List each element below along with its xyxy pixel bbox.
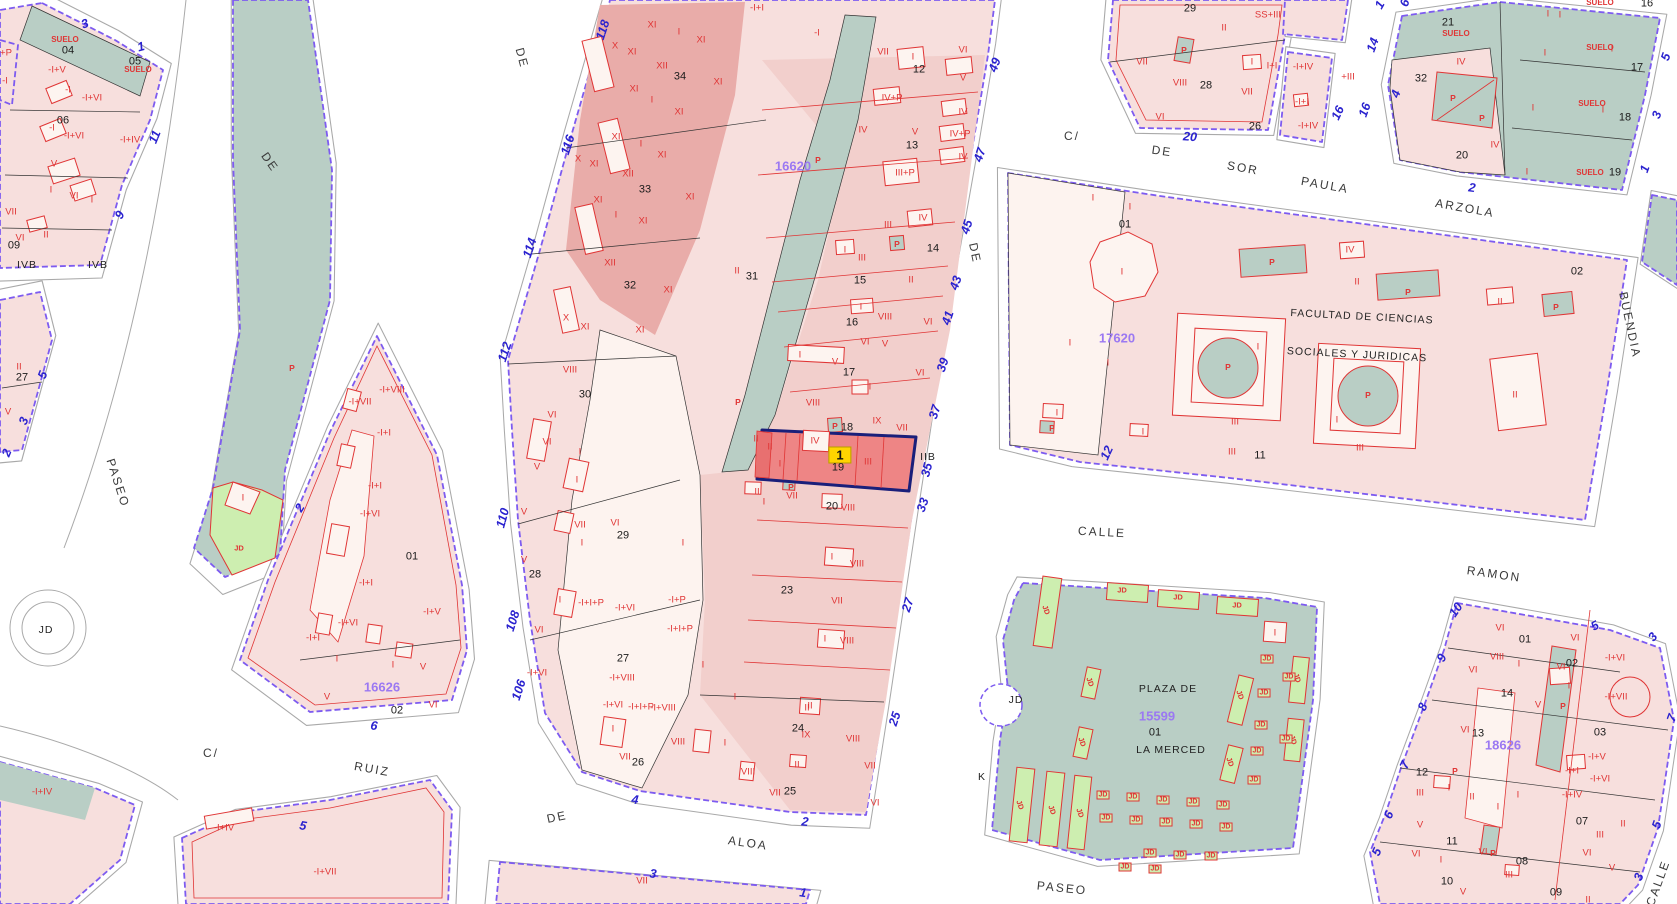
label-rl: VII bbox=[1136, 57, 1148, 67]
label-sn: 3 bbox=[1632, 872, 1646, 883]
label-rl: IX bbox=[873, 416, 882, 426]
label-sn: 6 bbox=[1398, 0, 1412, 8]
label-rl: -I+VI bbox=[603, 700, 623, 710]
label-rl: -I+IV bbox=[214, 823, 234, 833]
label-st: ALOA bbox=[727, 834, 768, 851]
label-rl: V bbox=[1417, 820, 1423, 830]
label-jdt: JD bbox=[1085, 676, 1095, 688]
label-rl: V bbox=[534, 462, 540, 472]
label-jd: JD bbox=[1217, 801, 1230, 810]
label-sn: 1 bbox=[1638, 164, 1652, 175]
label-rl: II bbox=[1497, 297, 1502, 307]
label-rl: I bbox=[831, 552, 834, 562]
label-bk: JD bbox=[1009, 695, 1024, 706]
label-pn: 02 bbox=[1571, 267, 1583, 278]
label-rl: I bbox=[869, 382, 872, 392]
label-rl: -I+VI bbox=[615, 603, 635, 613]
label-sn: 35 bbox=[919, 462, 935, 479]
label-rl: II bbox=[1354, 277, 1359, 287]
label-rl: V bbox=[521, 507, 527, 517]
label-rl: -I+VI bbox=[527, 668, 547, 678]
label-rl: I bbox=[678, 27, 681, 37]
label-pn: 26 bbox=[1249, 122, 1261, 133]
label-pn: 18 bbox=[1619, 113, 1631, 124]
label-rl: -I+I bbox=[306, 633, 320, 643]
label-rl: -I+VII bbox=[349, 397, 372, 407]
label-su: SUELO bbox=[1586, 0, 1614, 7]
label-sn: 6 bbox=[370, 719, 379, 732]
label-rl: I bbox=[1517, 790, 1520, 800]
label-rl: VII bbox=[896, 423, 908, 433]
label-rl: -I bbox=[65, 85, 71, 95]
label-rl: II bbox=[753, 434, 758, 444]
label-pn: 07 bbox=[1576, 817, 1588, 828]
label-rl: VI bbox=[924, 317, 933, 327]
label-rl: VII bbox=[831, 596, 843, 606]
label-rl: II bbox=[754, 487, 759, 497]
label-rl: I bbox=[1602, 105, 1605, 115]
label-rl: VII bbox=[786, 491, 798, 501]
label-rl: I bbox=[1532, 103, 1535, 113]
label-sn: 1 bbox=[1373, 0, 1387, 11]
label-rl: VIII bbox=[840, 636, 854, 646]
label-pn: 08 bbox=[1516, 857, 1528, 868]
label-p: P bbox=[1225, 363, 1231, 372]
label-rl: II bbox=[1585, 895, 1590, 904]
label-rl: III bbox=[858, 253, 866, 263]
label-rl: I bbox=[824, 634, 827, 644]
label-rl: I bbox=[844, 245, 847, 255]
label-jdt: JD bbox=[1015, 799, 1025, 811]
label-sn: 2 bbox=[1468, 181, 1477, 194]
label-sn: 5 bbox=[36, 369, 50, 380]
label-rl: VII bbox=[574, 520, 586, 530]
label-p: P bbox=[289, 364, 295, 373]
label-rl: VI bbox=[871, 798, 880, 808]
label-rl: VI bbox=[543, 437, 552, 447]
label-jd: JD bbox=[1130, 816, 1143, 825]
label-rl: II bbox=[43, 230, 48, 240]
label-rl: III bbox=[1231, 417, 1239, 427]
label-rl: -I+VI bbox=[1590, 774, 1610, 784]
label-pn: 33 bbox=[639, 185, 651, 196]
label-bk: SOCIALES Y JURIDICAS bbox=[1287, 346, 1428, 364]
label-rl: -I+V bbox=[423, 607, 441, 617]
label-jd: JD bbox=[1127, 793, 1140, 802]
label-rl: X bbox=[575, 154, 581, 164]
label-bk: LA MERCED bbox=[1136, 745, 1206, 756]
label-sn: 47 bbox=[972, 146, 988, 163]
label-jd: JD bbox=[1119, 863, 1132, 872]
label-p: P bbox=[1405, 288, 1411, 297]
label-rl: -I bbox=[49, 123, 55, 133]
label-bk: K bbox=[978, 772, 986, 783]
label-rl: V bbox=[521, 555, 527, 565]
label-rl: -I+VIII bbox=[650, 703, 676, 713]
label-sn: 3 bbox=[1646, 630, 1660, 643]
label-rl: VIII bbox=[671, 737, 685, 747]
label-rl: I bbox=[1251, 57, 1254, 67]
label-rl: I bbox=[581, 538, 584, 548]
label-jd: JD bbox=[1251, 747, 1264, 756]
label-rl: I bbox=[50, 185, 53, 195]
label-sn: 8 bbox=[1416, 701, 1430, 713]
label-rl: I bbox=[1547, 9, 1550, 19]
label-rl: VI bbox=[1496, 623, 1505, 633]
label-rl: I bbox=[1568, 681, 1571, 691]
label-p: P bbox=[1450, 94, 1456, 103]
label-rl: VIII bbox=[850, 559, 864, 569]
label-rl: V bbox=[420, 662, 426, 672]
label-rl: V bbox=[1460, 887, 1466, 897]
label-rl: III+P bbox=[895, 168, 915, 178]
label-sn: 27 bbox=[900, 597, 916, 614]
label-rl: -I+IV bbox=[32, 787, 52, 797]
label-jd: JD bbox=[1220, 823, 1233, 832]
label-pn: 29 bbox=[1184, 4, 1196, 15]
label-rl: VI bbox=[861, 337, 870, 347]
label-pn: 16 bbox=[1641, 0, 1653, 10]
label-rl: I bbox=[612, 724, 615, 734]
label-pn: 17 bbox=[1631, 63, 1643, 74]
label-pn: 01 bbox=[1119, 220, 1131, 231]
label-rl: I bbox=[1142, 427, 1145, 437]
label-sn: 5 bbox=[1589, 619, 1601, 633]
label-sn: 5 bbox=[298, 819, 307, 833]
label-rl: -I+VIII bbox=[609, 673, 635, 683]
label-rl: XII bbox=[622, 169, 634, 179]
label-rl: I bbox=[1440, 855, 1443, 865]
label-st: DE bbox=[546, 809, 569, 825]
label-rl: XI bbox=[658, 150, 667, 160]
label-pn: 32 bbox=[624, 281, 636, 292]
label-jd: JD bbox=[1205, 852, 1218, 861]
label-rl: VIII bbox=[741, 767, 755, 777]
label-rl: III bbox=[884, 220, 892, 230]
label-sn: 110 bbox=[494, 507, 511, 529]
label-rl: I bbox=[1069, 338, 1072, 348]
label-sn: 118 bbox=[594, 19, 612, 42]
label-pn: 01 bbox=[406, 552, 418, 563]
label-rl: -I+V bbox=[48, 65, 66, 75]
label-bn: 15599 bbox=[1139, 710, 1175, 723]
label-rl: I bbox=[734, 692, 737, 702]
label-rl: I bbox=[1518, 659, 1521, 669]
label-p: P bbox=[1479, 114, 1485, 123]
label-pn: 10 bbox=[1441, 877, 1453, 888]
label-rl: -I+VII bbox=[1605, 692, 1628, 702]
label-jdt: JD bbox=[1232, 601, 1242, 609]
label-jdt: JD bbox=[234, 544, 244, 552]
label-sn: 3 bbox=[1650, 110, 1664, 121]
label-rl: -I+V bbox=[1588, 752, 1606, 762]
label-pn: 30 bbox=[579, 390, 591, 401]
label-pn: 01 bbox=[1519, 635, 1531, 646]
label-rl: -I+IV bbox=[120, 135, 140, 145]
label-st: C/ bbox=[1064, 130, 1080, 142]
label-sn: 43 bbox=[948, 274, 964, 291]
label-rl: IV bbox=[1346, 245, 1355, 255]
label-sn: 16 bbox=[1329, 104, 1346, 122]
label-rl: II bbox=[1221, 23, 1226, 33]
label-jd: JD bbox=[1100, 814, 1113, 823]
label-su: SUELO bbox=[1442, 30, 1470, 38]
label-pn: 21 bbox=[1442, 18, 1454, 29]
label-rl: I bbox=[1544, 48, 1547, 58]
label-jd: JD bbox=[1160, 818, 1173, 827]
label-rl: VI bbox=[535, 625, 544, 635]
label-pn: 09 bbox=[1550, 888, 1562, 899]
label-rl: IV bbox=[1491, 140, 1500, 150]
label-pn: 12 bbox=[913, 65, 925, 76]
label-sn: 11 bbox=[147, 129, 163, 146]
label-pn: 34 bbox=[674, 72, 686, 83]
label-jdt: JD bbox=[1235, 689, 1245, 701]
label-sn: 108 bbox=[504, 609, 522, 633]
cadastral-map: DEDEPASEOC/RUIZDEALOADEC/DESORPAULAARZOL… bbox=[0, 0, 1677, 904]
label-jd: JD bbox=[1255, 721, 1268, 730]
label-p: P bbox=[735, 398, 741, 407]
label-rl: IV bbox=[919, 213, 928, 223]
label-sn: 2 bbox=[801, 815, 809, 828]
label-rl: V bbox=[324, 692, 330, 702]
label-pn: 27 bbox=[617, 654, 629, 665]
label-rl: XI bbox=[581, 322, 590, 332]
label-rl: III bbox=[1356, 443, 1364, 453]
label-rl: I bbox=[1274, 628, 1277, 638]
label-pn: 01 bbox=[1149, 728, 1161, 739]
label-rl: I bbox=[576, 475, 579, 485]
label-sn: 10 bbox=[1447, 601, 1465, 620]
label-rl: -I+VI bbox=[1605, 653, 1625, 663]
label-rl: I bbox=[912, 52, 915, 62]
label-jd: JD bbox=[1190, 820, 1203, 829]
label-rl: I bbox=[392, 660, 395, 670]
label-bk: JD bbox=[39, 625, 54, 636]
label-rl: -I+P bbox=[668, 595, 686, 605]
label-st: BUENDIA bbox=[1617, 291, 1643, 359]
label-rl: VI bbox=[1571, 633, 1580, 643]
label-rl: -I+I bbox=[377, 428, 391, 438]
label-pn: 11 bbox=[1254, 451, 1265, 462]
label-rl: VI bbox=[1557, 662, 1566, 672]
label-rl: III bbox=[1596, 830, 1604, 840]
label-sn: 7 bbox=[1665, 713, 1677, 724]
label-rl: I bbox=[1107, 358, 1110, 368]
label-sn: 25 bbox=[887, 710, 903, 727]
label-jdt: JD bbox=[1173, 593, 1183, 601]
label-sn: 2 bbox=[293, 502, 307, 515]
label-p: P bbox=[1049, 424, 1055, 433]
label-pn: 13 bbox=[906, 141, 918, 152]
label-sn: 49 bbox=[987, 56, 1004, 73]
label-rl: III bbox=[1505, 870, 1513, 880]
label-rl: I bbox=[860, 302, 863, 312]
label-sn: 114 bbox=[521, 237, 539, 260]
label-rl: -I bbox=[2, 76, 8, 86]
label-rl: IV bbox=[1457, 57, 1466, 67]
label-su: SUELO bbox=[1576, 169, 1604, 177]
label-pn: 20 bbox=[1456, 151, 1468, 162]
label-rl: -I+VIII bbox=[379, 385, 405, 395]
label-rl: VIII bbox=[841, 503, 855, 513]
label-rl: VIII bbox=[563, 365, 577, 375]
label-rl: IV bbox=[811, 436, 820, 446]
label-rl: II bbox=[1469, 792, 1474, 802]
label-rl: I bbox=[1056, 408, 1059, 418]
label-rl: IX bbox=[802, 730, 811, 740]
label-rl: I bbox=[615, 210, 618, 220]
label-rl: XI bbox=[686, 192, 695, 202]
label-rl: -I+I bbox=[1565, 766, 1579, 776]
label-st: ARZOLA bbox=[1434, 197, 1495, 219]
label-pn: 13 bbox=[1472, 729, 1484, 740]
label-st: PASEO bbox=[104, 457, 131, 509]
label-rl: V bbox=[5, 407, 11, 417]
label-rl: I bbox=[559, 595, 562, 605]
label-pn: 17 bbox=[843, 368, 855, 379]
label-st: SOR bbox=[1226, 159, 1260, 176]
label-rl: VIII bbox=[1173, 78, 1187, 88]
label-p: P bbox=[894, 240, 900, 249]
label-bk: PLAZA DE bbox=[1139, 684, 1197, 695]
label-rl: III bbox=[1228, 447, 1236, 457]
label-pn: 02 bbox=[1566, 659, 1578, 670]
label-bk: IVB bbox=[17, 260, 37, 271]
label-rl: I bbox=[579, 447, 582, 457]
label-rl: III bbox=[1416, 788, 1424, 798]
label-pn: 16 bbox=[846, 318, 858, 329]
label-rl: VI bbox=[429, 700, 438, 710]
label-jd: JD bbox=[1144, 849, 1157, 858]
label-rl: -I+I bbox=[1295, 97, 1309, 107]
label-p: P bbox=[1490, 849, 1496, 858]
label-rl: XI bbox=[639, 216, 648, 226]
label-rl: I bbox=[682, 538, 685, 548]
label-jdt: JD bbox=[1225, 756, 1235, 768]
label-rl: I bbox=[1526, 167, 1529, 177]
label-sn: 39 bbox=[935, 356, 951, 373]
label-pn: 04 bbox=[62, 46, 74, 57]
label-sn: 4 bbox=[631, 793, 639, 806]
label-st: CALLE bbox=[1644, 858, 1672, 904]
label-rl: IV+P bbox=[950, 129, 971, 139]
label-rl: VI bbox=[1479, 847, 1488, 857]
label-sn: 5 bbox=[1370, 846, 1384, 858]
label-rl: XI bbox=[636, 325, 645, 335]
label-jd: JD bbox=[1261, 655, 1274, 664]
label-pn: 29 bbox=[617, 531, 629, 542]
label-su: SUELO bbox=[1586, 44, 1614, 52]
label-rl: XI bbox=[628, 47, 637, 57]
label-rl: III bbox=[864, 457, 872, 467]
label-rl: XI bbox=[594, 195, 603, 205]
label-st: C/ bbox=[203, 747, 219, 759]
label-rl: -I+IV bbox=[1562, 790, 1582, 800]
label-st: DE bbox=[967, 242, 983, 265]
label-sn: 3 bbox=[17, 415, 31, 426]
label-jd: JD bbox=[1283, 673, 1296, 682]
label-rl: I bbox=[651, 95, 654, 105]
label-pn: 15 bbox=[854, 276, 866, 287]
label-rl: I bbox=[336, 654, 339, 664]
label-bn: 18626 bbox=[1485, 739, 1521, 752]
label-st: RAMON bbox=[1466, 564, 1522, 583]
label-rl: V bbox=[960, 73, 966, 83]
label-rl: XI bbox=[648, 20, 657, 30]
label-rl: -I+I bbox=[750, 3, 764, 13]
label-bn: 16620 bbox=[775, 160, 811, 173]
label-rl: -I bbox=[814, 28, 820, 38]
label-rl: VII bbox=[1241, 87, 1253, 97]
label-rl: I bbox=[779, 459, 782, 469]
label-pn: 06 bbox=[57, 116, 69, 127]
label-jdt: JD bbox=[1077, 736, 1087, 748]
label-rl: -I+IV bbox=[1298, 121, 1318, 131]
label-jd: JD bbox=[1157, 796, 1170, 805]
label-rl: I bbox=[242, 493, 245, 503]
label-rl: I bbox=[1336, 415, 1339, 425]
label-pn: 28 bbox=[1200, 81, 1212, 92]
label-rl: II bbox=[16, 362, 21, 372]
label-pn: 19 bbox=[832, 463, 844, 474]
label-st: DE bbox=[514, 46, 531, 69]
label-rl: VII bbox=[636, 876, 648, 886]
label-pn: 03 bbox=[1594, 728, 1606, 739]
label-rl: I bbox=[702, 660, 705, 670]
label-pn: 20 bbox=[826, 502, 838, 513]
label-st: PAULA bbox=[1300, 175, 1350, 195]
label-sn: 5 bbox=[1659, 52, 1673, 63]
label-p: P bbox=[1269, 258, 1275, 267]
label-pn: 11 bbox=[1446, 837, 1457, 848]
label-p: P bbox=[815, 156, 821, 165]
label-jd: JD bbox=[1097, 791, 1110, 800]
label-rl: II bbox=[1620, 819, 1625, 829]
label-rl: I bbox=[1121, 267, 1124, 277]
label-rl: IV bbox=[959, 107, 968, 117]
label-p: P bbox=[1181, 46, 1187, 55]
label-sn: 106 bbox=[510, 678, 528, 702]
label-sn: 3 bbox=[80, 17, 91, 31]
label-rl: II bbox=[794, 760, 799, 770]
label-rl: XI bbox=[612, 132, 621, 142]
label-jd: JD bbox=[1174, 851, 1187, 860]
label-pn: 31 bbox=[746, 272, 758, 283]
label-rl: I+I bbox=[1267, 61, 1278, 71]
label-sn: 7 bbox=[1398, 759, 1412, 771]
label-rl: II bbox=[767, 442, 772, 452]
label-st: RUIZ bbox=[353, 760, 391, 778]
label-rl: VIII bbox=[1490, 652, 1504, 662]
label-sn: 12 bbox=[1098, 444, 1115, 462]
label-rl: XI bbox=[675, 107, 684, 117]
label-rl: V bbox=[832, 357, 838, 367]
label-rl: VII bbox=[769, 788, 781, 798]
label-rl: XI bbox=[697, 35, 706, 45]
label-rl: XII bbox=[604, 258, 616, 268]
label-rl: VI bbox=[611, 518, 620, 528]
label-sn: 14 bbox=[1365, 36, 1382, 53]
label-rl: -I+VI bbox=[338, 618, 358, 628]
label-rl: VII bbox=[864, 761, 876, 771]
label-su: SUELO bbox=[124, 66, 152, 74]
label-p: P bbox=[788, 483, 794, 492]
label-rl: -I+I+P bbox=[578, 598, 604, 608]
label-rl: VI bbox=[70, 191, 79, 201]
label-rl: VI bbox=[1583, 848, 1592, 858]
label-rl: VI bbox=[1156, 112, 1165, 122]
